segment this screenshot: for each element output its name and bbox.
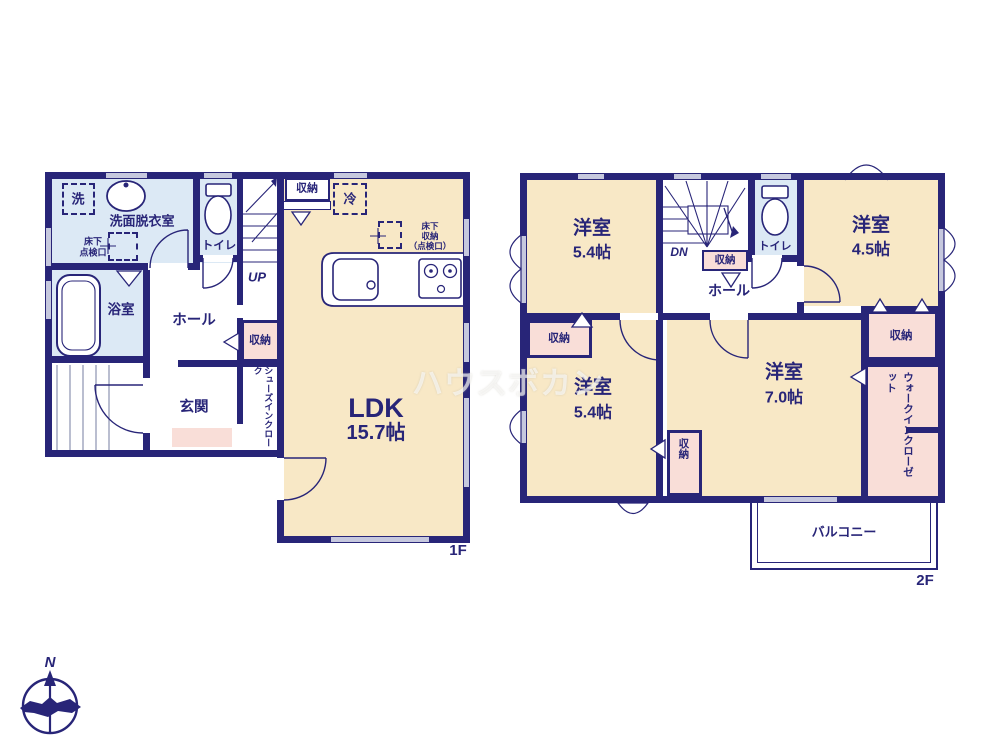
window	[520, 410, 527, 444]
hall-2f-label: ホール	[708, 283, 750, 300]
wall	[656, 180, 663, 496]
wall	[520, 173, 527, 503]
compass-icon	[20, 670, 81, 734]
wall	[178, 360, 237, 367]
walkin-closet-label: ウォークインクローゼット	[882, 372, 916, 478]
door-opening	[752, 255, 782, 262]
stairs-1f	[243, 177, 280, 262]
wall	[45, 450, 283, 457]
washer-label: 洗	[71, 191, 84, 206]
hall-storage-label: 収納	[249, 335, 271, 348]
hall-1f-label: ホール	[172, 312, 216, 329]
window	[463, 322, 470, 363]
door-opening	[237, 424, 243, 450]
storage-ne-label: 収納	[890, 330, 913, 344]
window	[105, 172, 148, 179]
compass-north-label: N	[45, 654, 56, 672]
window	[577, 173, 605, 180]
window	[463, 218, 470, 257]
compass-landmass	[20, 697, 81, 717]
ldk-label: LDK	[348, 393, 404, 425]
wall	[663, 313, 868, 320]
ldk-storage-shelf	[283, 201, 331, 210]
door-opening	[203, 255, 233, 262]
stairs-dn-label: DN	[670, 245, 687, 259]
bedroom-nw-label: 洋室	[573, 218, 611, 240]
watermark: ハウスボカン	[412, 358, 604, 403]
wall	[748, 180, 755, 262]
bedroom-nw-size: 5.4帖	[573, 245, 611, 264]
ldk-storage-label: 収納	[296, 183, 318, 196]
door-opening	[148, 263, 188, 270]
bedroom-ne-label: 洋室	[852, 215, 890, 237]
wall	[868, 360, 938, 367]
bathroom-floor	[52, 270, 150, 363]
bedroom-ne-size: 4.5帖	[852, 242, 890, 261]
door-arc-toilet-2f	[752, 258, 782, 288]
door-opening	[710, 313, 748, 320]
door-opening	[150, 360, 178, 367]
storage-sw-label: 収納	[677, 438, 689, 490]
wall	[52, 263, 148, 270]
door-opening	[143, 378, 150, 433]
window	[520, 235, 527, 304]
wall	[861, 306, 938, 313]
window	[330, 536, 430, 543]
underfloor-storage-label: 床下 収納 （点検口）	[409, 221, 452, 251]
toilet-1f-label: トイレ	[202, 240, 237, 254]
underfloor-hatch-label: 床下 点検口	[79, 236, 106, 257]
entrance-mat	[172, 428, 232, 447]
door-opening	[620, 313, 658, 320]
bedroom-sw-size: 5.4帖	[574, 405, 612, 424]
bedroom-se-size: 7.0帖	[765, 390, 803, 409]
window	[673, 173, 702, 180]
wall	[861, 306, 868, 496]
underfloor-storage-dashed-box	[378, 221, 402, 249]
door-opening	[277, 458, 284, 500]
wall	[188, 263, 200, 270]
window	[938, 228, 945, 292]
stairs-2f	[663, 181, 745, 247]
window	[463, 397, 470, 488]
window	[760, 173, 792, 180]
bathroom-label: 浴室	[108, 302, 135, 318]
window	[203, 172, 233, 179]
floor2-label: 2F	[916, 572, 934, 590]
entrance-label: 玄関	[180, 399, 209, 416]
under-stairs-storage-label: 収納	[715, 254, 736, 266]
storage-nw-label: 収納	[548, 333, 570, 346]
underfloor-hatch-dashed-box	[108, 232, 138, 261]
wall	[237, 179, 243, 305]
bedroom-se-label: 洋室	[765, 362, 803, 384]
washroom-label: 洗面脱衣室	[109, 213, 174, 228]
wall	[938, 173, 945, 503]
window	[763, 496, 838, 503]
wall	[520, 496, 945, 503]
porch-floor	[45, 363, 147, 457]
balcony-label: バルコニー	[812, 524, 877, 539]
wall	[143, 270, 150, 363]
stairs-up-label: UP	[248, 269, 266, 284]
ldk-size-label: 15.7帖	[347, 422, 406, 446]
window	[45, 280, 52, 320]
floorplan-canvas: 洗 洗面脱衣室 床下 点検口 トイレ UP 収納 冷 床下 収納 （点検口） 浴…	[0, 0, 1000, 750]
window	[333, 172, 368, 179]
floor1-label: 1F	[449, 542, 467, 560]
door-opening	[797, 266, 804, 302]
window	[45, 227, 52, 267]
fridge-label: 冷	[343, 191, 356, 206]
wall	[52, 356, 150, 363]
toilet-2f-label: トイレ	[759, 241, 792, 254]
wall	[193, 179, 200, 263]
shoe-closet-label: シューズインクローク	[252, 366, 273, 452]
